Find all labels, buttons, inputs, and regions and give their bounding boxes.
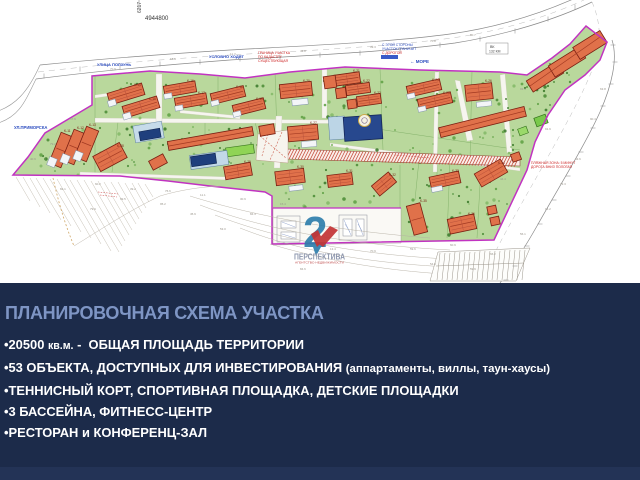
svg-text:K-19: K-19 <box>256 97 263 101</box>
svg-text:79.9: 79.9 <box>90 207 96 211</box>
svg-text:K-36: K-36 <box>468 212 475 216</box>
svg-text:K-30: K-30 <box>297 165 304 169</box>
svg-text:45.9: 45.9 <box>190 212 196 216</box>
svg-text:53.0: 53.0 <box>220 227 226 231</box>
svg-text:13.4: 13.4 <box>330 247 336 251</box>
svg-text:82.1: 82.1 <box>60 187 66 191</box>
svg-text:132 КМ: 132 КМ <box>489 50 501 54</box>
svg-text:76.6: 76.6 <box>165 189 171 193</box>
svg-text:11.1: 11.1 <box>200 193 206 197</box>
svg-text:70.9: 70.9 <box>370 249 376 253</box>
svg-text:91.9: 91.9 <box>545 127 551 131</box>
svg-text:K-29: K-29 <box>244 160 251 164</box>
svg-text:90.4: 90.4 <box>590 117 596 121</box>
svg-text:K-28: K-28 <box>117 144 124 148</box>
svg-text:63.8: 63.8 <box>600 87 606 91</box>
svg-text:K-27: K-27 <box>310 121 317 125</box>
svg-text:84.3: 84.3 <box>250 212 256 216</box>
svg-text:57.9: 57.9 <box>70 117 76 121</box>
svg-text:4944800: 4944800 <box>145 16 169 22</box>
svg-text:K-17: K-17 <box>198 91 205 95</box>
svg-text:K-25: K-25 <box>443 91 450 95</box>
svg-text:15.4: 15.4 <box>280 202 286 206</box>
svg-text:60.2: 60.2 <box>95 182 101 186</box>
svg-text:93.3: 93.3 <box>520 87 526 91</box>
svg-text:K-31: K-31 <box>346 169 353 173</box>
svg-text:39.3: 39.3 <box>370 45 376 49</box>
svg-text:С ДОРОГОЙ: С ДОРОГОЙ <box>382 51 402 55</box>
svg-text:18.9: 18.9 <box>170 57 176 61</box>
svg-text:56.1: 56.1 <box>520 232 526 236</box>
svg-text:73.3: 73.3 <box>560 182 566 186</box>
svg-text:K-26: K-26 <box>485 79 492 83</box>
svg-text:K-35: K-35 <box>420 199 427 203</box>
svg-text:ДОРОГА ВНИЗ ПОЛОГАЯ: ДОРОГА ВНИЗ ПОЛОГАЯ <box>531 165 572 169</box>
svg-text:80.7: 80.7 <box>470 33 476 37</box>
svg-text:K-11: K-11 <box>64 129 71 133</box>
svg-text:84.6: 84.6 <box>300 267 306 271</box>
svg-text:70.9: 70.9 <box>110 67 116 71</box>
svg-text:K-14: K-14 <box>134 83 141 87</box>
svg-text:K-21: K-21 <box>353 69 360 73</box>
svg-text:K-23: K-23 <box>374 91 381 95</box>
svg-text:K-20: K-20 <box>303 79 310 83</box>
svg-text:44.4: 44.4 <box>500 177 506 181</box>
svg-text:K-34: K-34 <box>498 161 505 165</box>
svg-text:40.9: 40.9 <box>30 157 36 161</box>
svg-text:СУЩЕСТВУЮЩАЯ: СУЩЕСТВУЮЩАЯ <box>258 59 289 63</box>
svg-text:K-22: K-22 <box>363 79 370 83</box>
svg-text:70.8: 70.8 <box>430 39 436 43</box>
svg-text:K-13: K-13 <box>89 123 96 127</box>
svg-text:66.2: 66.2 <box>490 252 496 256</box>
svg-text:АГЕНТСТВО НЕДВИЖИМОСТИ: АГЕНТСТВО НЕДВИЖИМОСТИ <box>295 260 344 264</box>
svg-text:K-33: K-33 <box>452 169 459 173</box>
svg-text:95.2: 95.2 <box>160 202 166 206</box>
svg-text:K-24: K-24 <box>432 78 439 82</box>
svg-text:30.9: 30.9 <box>240 197 246 201</box>
svg-text:K-15: K-15 <box>149 97 156 101</box>
svg-text:K-32: K-32 <box>389 173 396 177</box>
svg-text:59.6: 59.6 <box>410 247 416 251</box>
svg-text:УЛ.ПРИМОРСКА: УЛ.ПРИМОРСКА <box>14 125 47 130</box>
svg-text:← МОРЕ: ← МОРЕ <box>410 59 429 64</box>
svg-text:60.9: 60.9 <box>450 243 456 247</box>
svg-text:УСЛОВНО ХОДЯТ: УСЛОВНО ХОДЯТ <box>209 54 245 59</box>
svg-text:43.8: 43.8 <box>300 49 306 53</box>
svg-text:6217: 6217 <box>137 2 143 13</box>
svg-text:39.2: 39.2 <box>130 187 136 191</box>
svg-text:УЛИЦА ПОЛЗУНЬ: УЛИЦА ПОЛЗУНЬ <box>97 62 131 67</box>
svg-text:14.2: 14.2 <box>545 207 551 211</box>
svg-text:79.2: 79.2 <box>50 142 56 146</box>
svg-text:59.9: 59.9 <box>470 267 476 271</box>
svg-text:K-18: K-18 <box>236 85 243 89</box>
svg-text:K-12: K-12 <box>77 126 84 130</box>
svg-text:99.5: 99.5 <box>120 197 126 201</box>
svg-text:K-16: K-16 <box>187 79 194 83</box>
svg-text:54.8: 54.8 <box>430 262 436 266</box>
svg-text:43.6: 43.6 <box>575 157 581 161</box>
